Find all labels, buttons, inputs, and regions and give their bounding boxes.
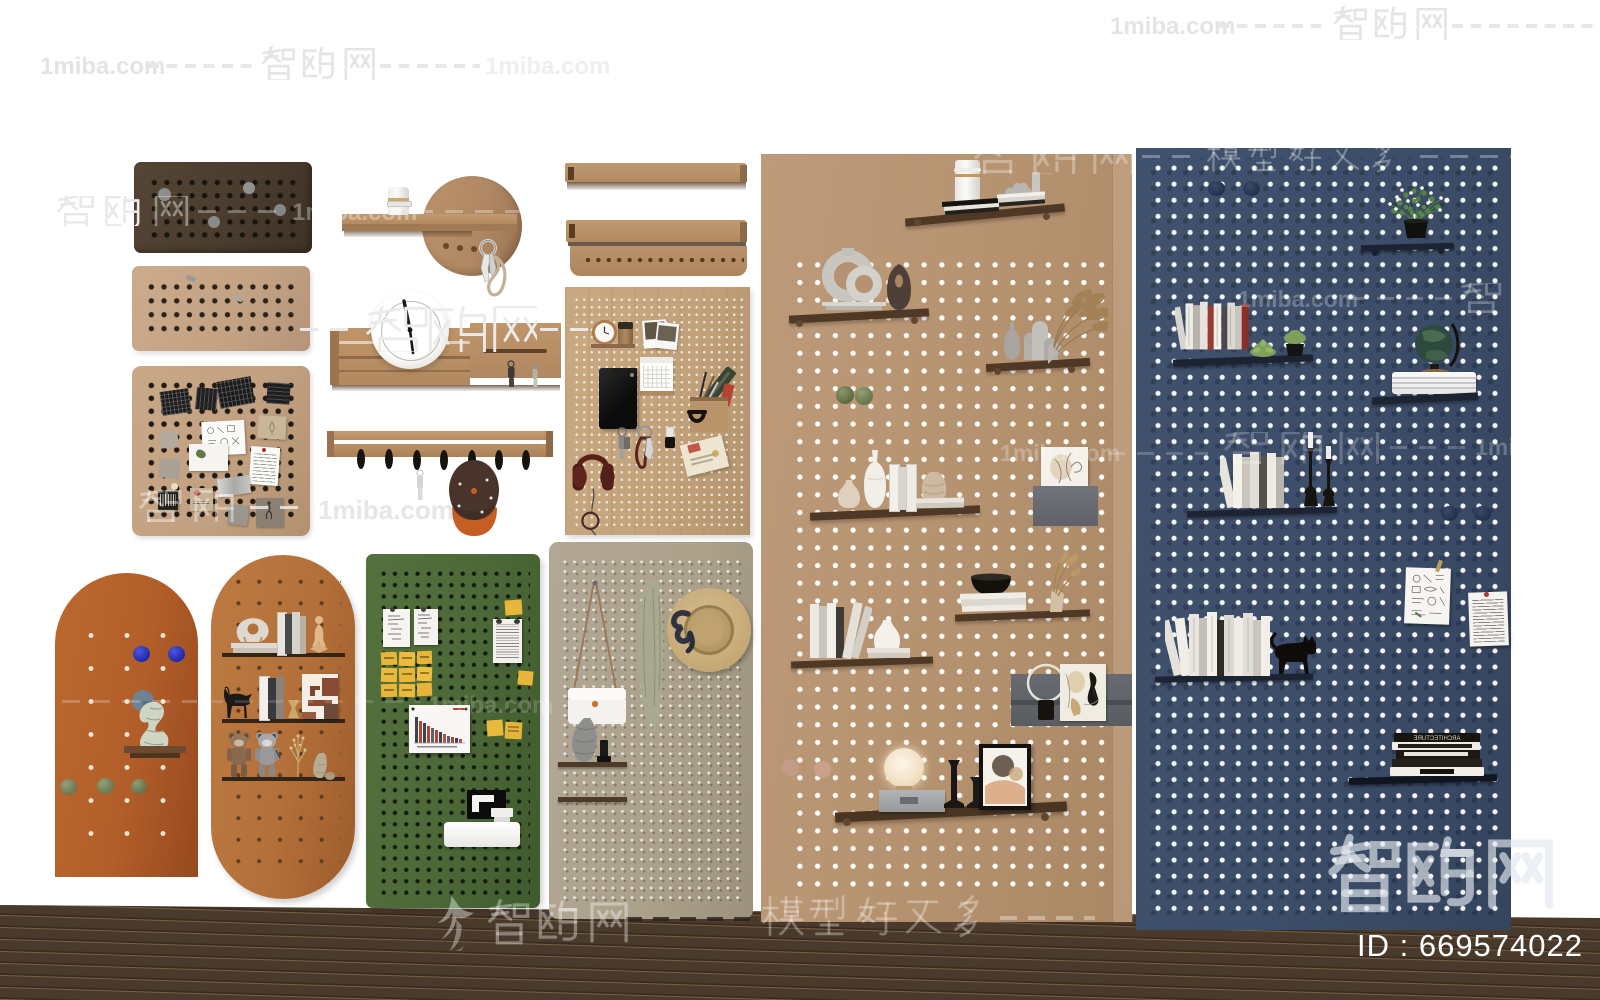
svg-text:ARCHITECTURE: ARCHITECTURE — [1413, 736, 1460, 742]
